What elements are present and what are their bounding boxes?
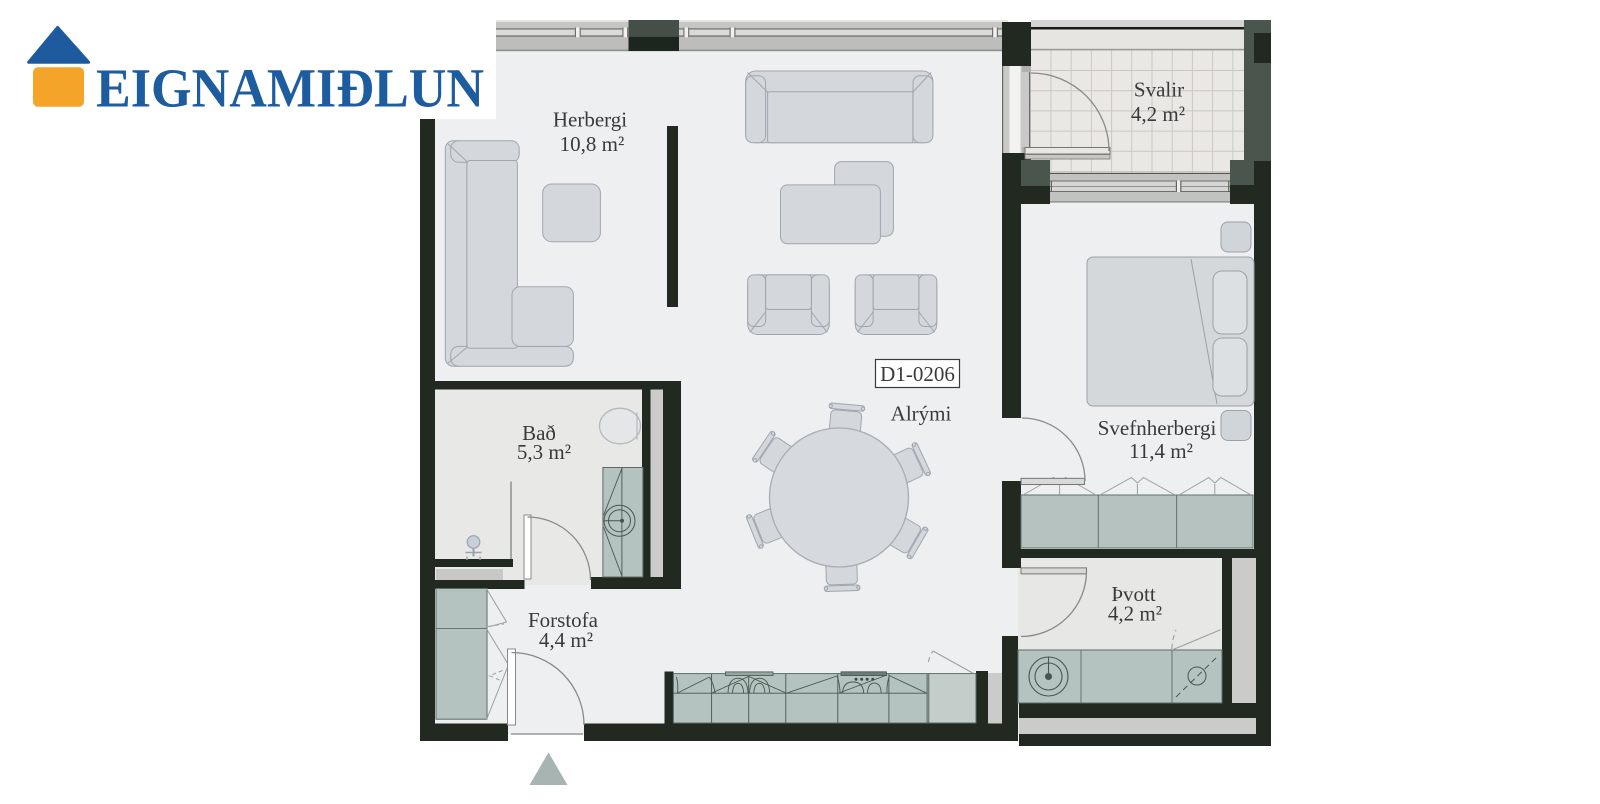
svg-text:Svefnherbergi: Svefnherbergi (1098, 416, 1217, 440)
svg-text:5,3 m²: 5,3 m² (517, 440, 571, 464)
svg-text:Svalir: Svalir (1134, 78, 1184, 102)
svg-text:Alrými: Alrými (891, 402, 952, 426)
svg-text:EIGNAMIÐLUN: EIGNAMIÐLUN (96, 59, 484, 120)
svg-text:4,4 m²: 4,4 m² (539, 628, 593, 652)
svg-text:Herbergi: Herbergi (553, 108, 627, 132)
svg-text:4,2 m²: 4,2 m² (1108, 602, 1162, 626)
svg-text:D1-0206: D1-0206 (880, 362, 955, 386)
svg-text:11,4 m²: 11,4 m² (1129, 439, 1193, 463)
svg-text:10,8 m²: 10,8 m² (560, 132, 625, 156)
svg-text:4,2 m²: 4,2 m² (1131, 102, 1185, 126)
